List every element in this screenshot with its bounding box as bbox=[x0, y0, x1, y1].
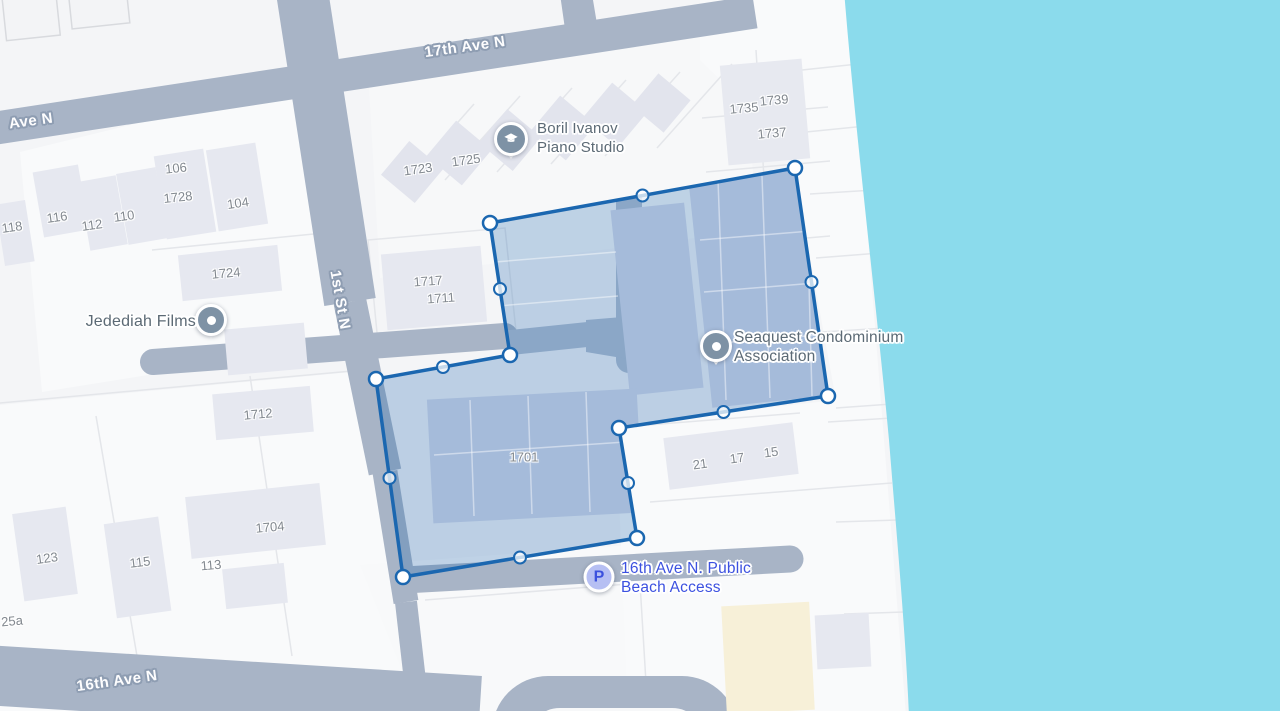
building bbox=[224, 323, 308, 376]
building bbox=[222, 563, 288, 609]
building bbox=[815, 613, 872, 670]
road-loop bbox=[492, 676, 738, 711]
polygon-midpoint-handle[interactable] bbox=[384, 472, 396, 484]
polygon-midpoint-handle[interactable] bbox=[494, 283, 506, 295]
parking-letter: P bbox=[594, 569, 605, 585]
road-driveway-stub bbox=[560, 0, 598, 36]
parcel-interior-detail bbox=[427, 389, 643, 524]
building bbox=[381, 246, 487, 330]
map-canvas[interactable]: 17th Ave NAve N1st St N16th Ave N1723172… bbox=[0, 0, 1280, 711]
graduation-cap-glyph bbox=[503, 131, 519, 147]
polygon-vertex-handle[interactable] bbox=[483, 216, 497, 230]
polygon-midpoint-handle[interactable] bbox=[806, 276, 818, 288]
graduation-cap-pin-icon[interactable] bbox=[494, 122, 528, 156]
polygon-midpoint-handle[interactable] bbox=[437, 361, 449, 373]
building bbox=[2, 0, 61, 41]
building bbox=[721, 602, 815, 711]
pin-inner-dot bbox=[712, 342, 721, 351]
polygon-vertex-handle[interactable] bbox=[369, 372, 383, 386]
polygon-midpoint-handle[interactable] bbox=[622, 477, 634, 489]
map-graphics bbox=[0, 0, 1280, 711]
polygon-vertex-handle[interactable] bbox=[788, 161, 802, 175]
polygon-vertex-handle[interactable] bbox=[396, 570, 410, 584]
polygon-midpoint-handle[interactable] bbox=[514, 552, 526, 564]
polygon-vertex-handle[interactable] bbox=[612, 421, 626, 435]
pin-inner-dot bbox=[207, 316, 216, 325]
building bbox=[720, 59, 810, 166]
parking-icon[interactable]: P bbox=[584, 562, 615, 593]
polygon-midpoint-handle[interactable] bbox=[637, 190, 649, 202]
location-dot-pin-icon-circle bbox=[700, 330, 732, 362]
polygon-vertex-handle[interactable] bbox=[630, 531, 644, 545]
water bbox=[844, 0, 1280, 711]
graduation-cap-pin-icon-circle bbox=[494, 122, 528, 156]
polygon-vertex-handle[interactable] bbox=[503, 348, 517, 362]
polygon-midpoint-handle[interactable] bbox=[718, 406, 730, 418]
building bbox=[68, 0, 130, 29]
location-dot-pin-icon[interactable] bbox=[700, 330, 732, 362]
parcel-interior-detail bbox=[497, 334, 592, 344]
location-dot-pin-icon[interactable] bbox=[195, 304, 227, 336]
building bbox=[212, 386, 314, 440]
location-dot-pin-icon-circle bbox=[195, 304, 227, 336]
polygon-vertex-handle[interactable] bbox=[821, 389, 835, 403]
road-16th-ave-n bbox=[0, 674, 480, 706]
parking-icon-circle: P bbox=[584, 562, 615, 593]
